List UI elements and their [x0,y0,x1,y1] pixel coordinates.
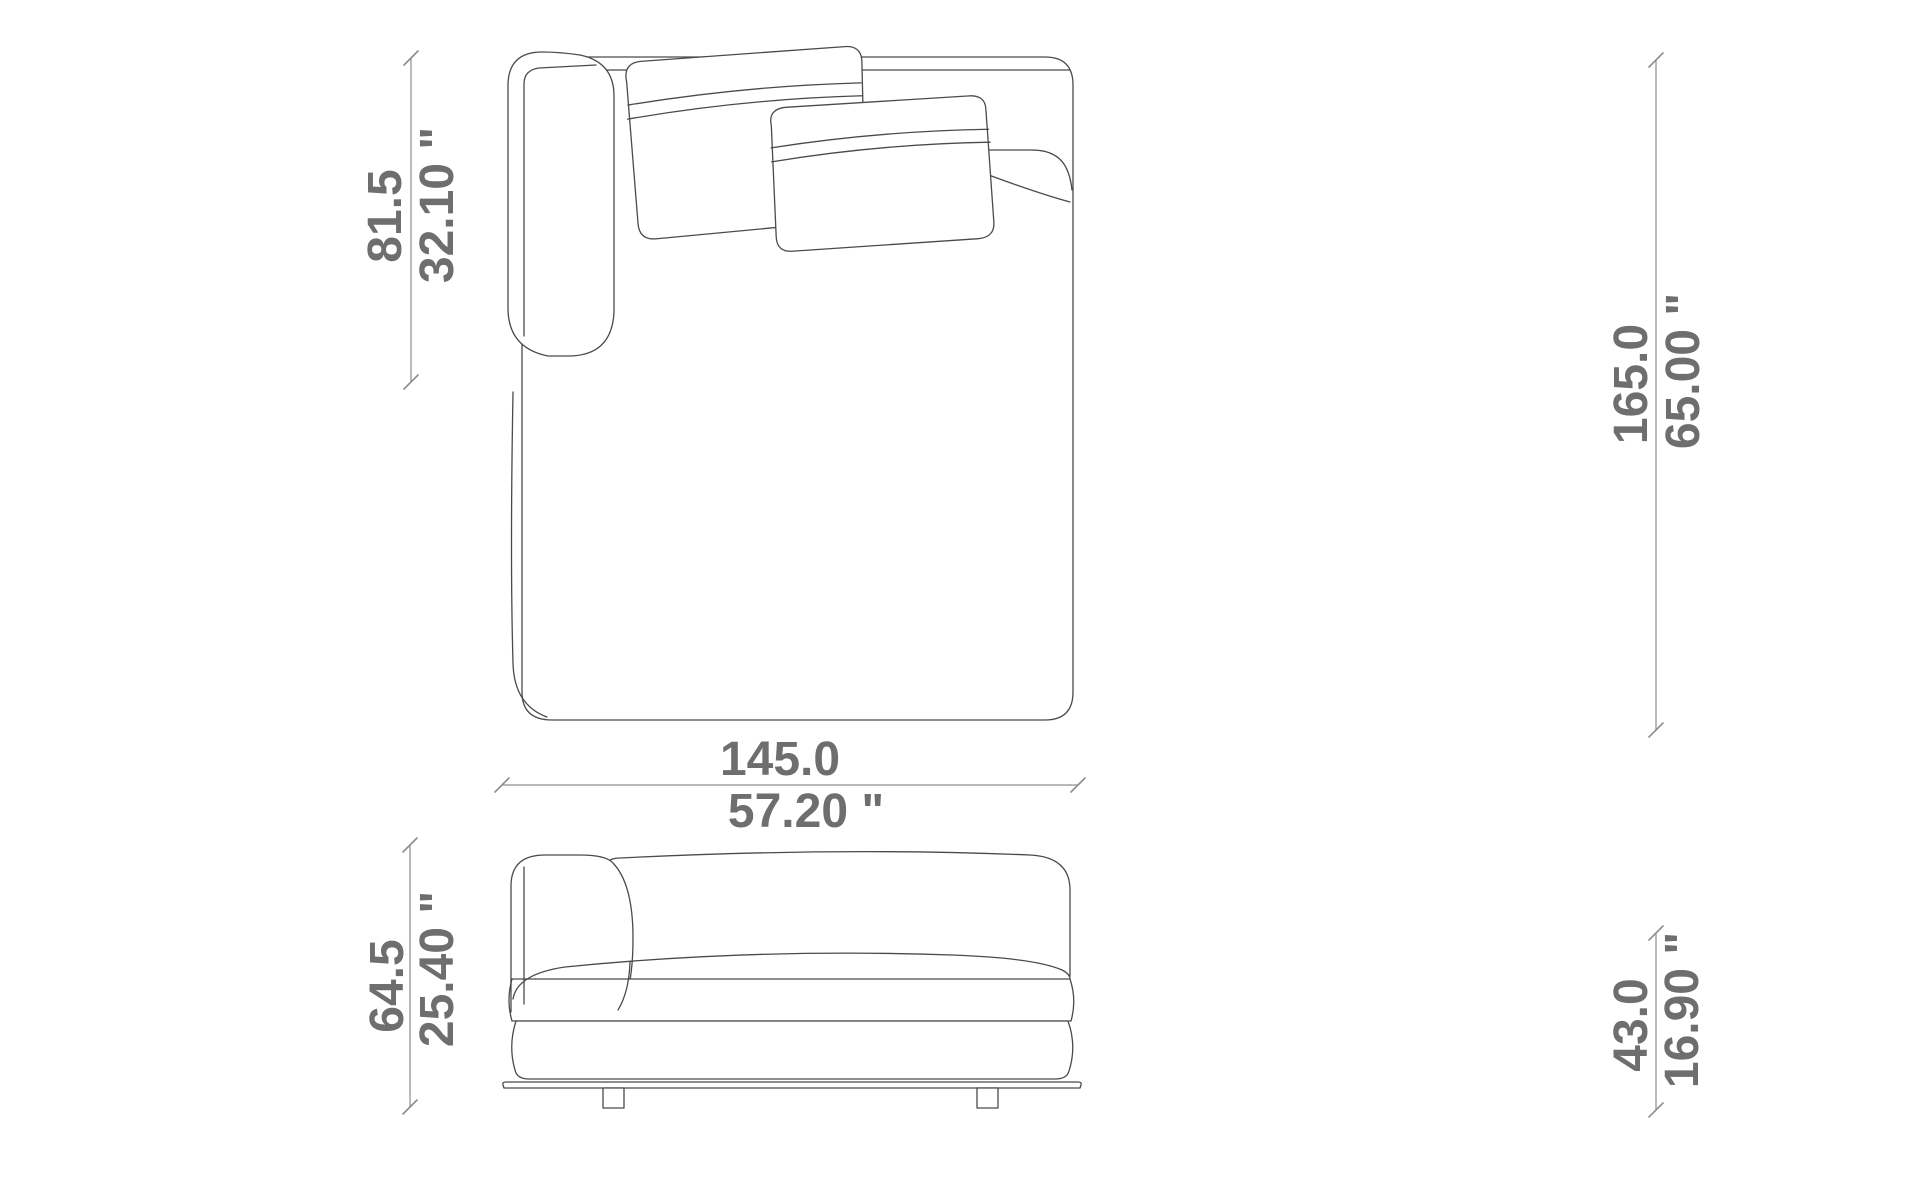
front-view-foot-left [603,1088,624,1108]
dim-armrest-length-inch-label: 32.10 " [414,127,462,283]
front-view-drawing [503,852,1081,1108]
front-view-foot-right [977,1088,998,1108]
dim-overall-height-inch-label: 25.40 " [414,891,462,1047]
dim-overall-height-cm-label: 64.5 [364,939,412,1032]
front-view-base-cushion [512,1021,1073,1079]
dim-seat-height-cm-label: 43.0 [1608,978,1656,1071]
dim-overall-width-cm-label: 145.0 [720,736,840,784]
dim-armrest-length-cm-label: 81.5 [362,169,410,262]
dim-overall-depth-inch-label: 65.00 " [1660,293,1708,449]
dim-overall-depth-cm-label: 165.0 [1608,324,1656,444]
top-view-drawing [508,46,1073,720]
top-view-back-cushion-small [770,95,995,252]
front-view-seat-band [509,979,1074,1021]
dim-seat-height-inch-label: 16.90 " [1659,932,1707,1088]
front-view-plinth [503,1082,1081,1088]
dim-overall-width-inch-label: 57.20 " [728,788,884,836]
technical-drawing-canvas: 81.5 32.10 " 145.0 57.20 " 165.0 65.00 "… [0,0,1920,1200]
